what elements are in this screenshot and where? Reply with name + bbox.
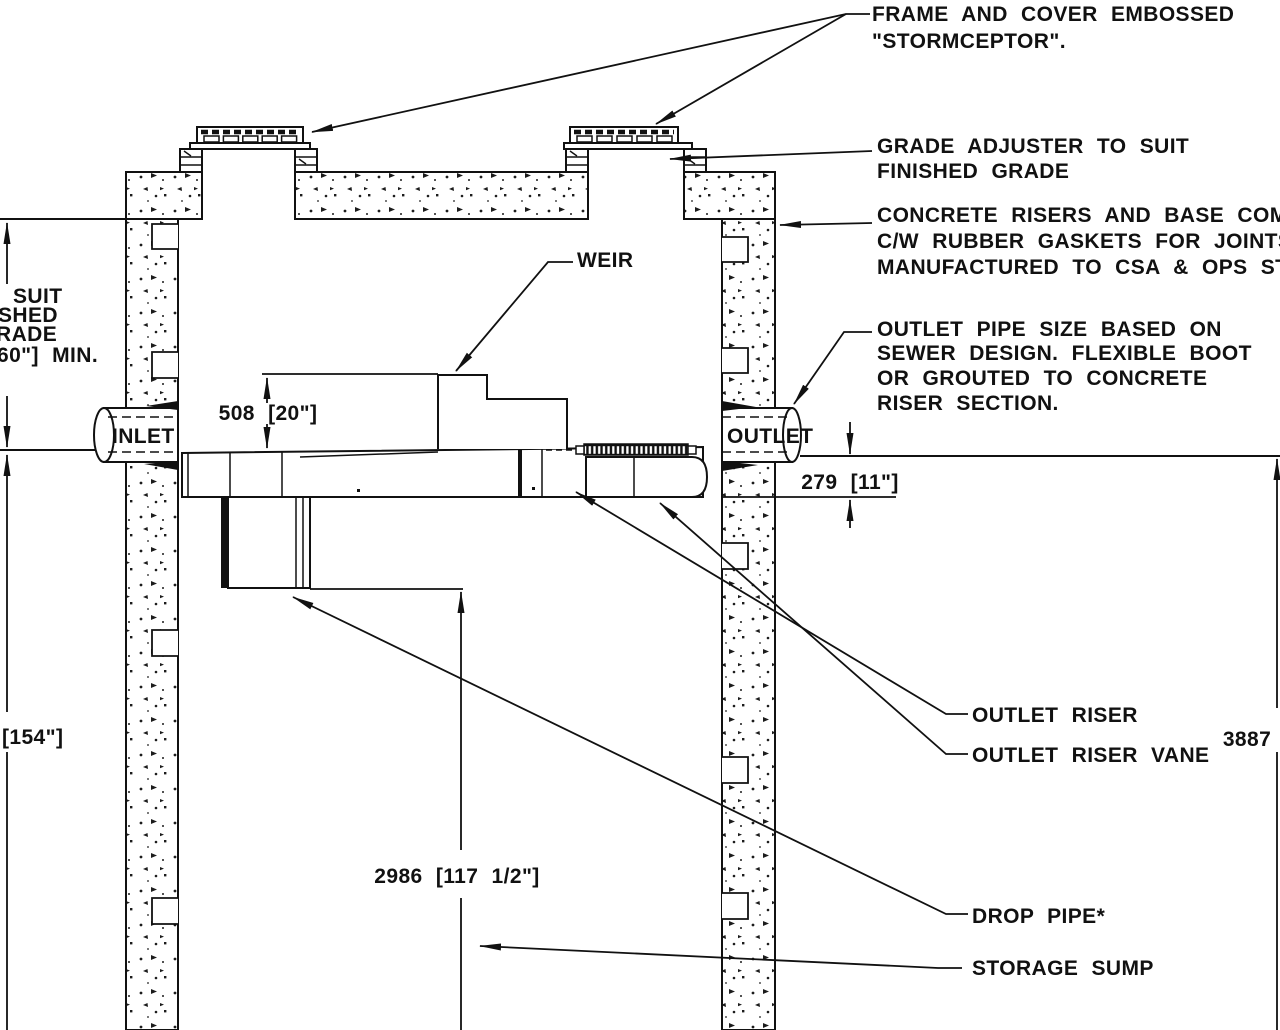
dim-overall-height: 3887 — [1223, 728, 1271, 751]
callout-concrete-risers: CONCRETE RISERS AND BASE COMPONENTS — [877, 204, 1280, 227]
weir-plate — [438, 375, 567, 449]
callout-drop-pipe: DROP PIPE* — [972, 905, 1106, 928]
dim-sump-depth: 2986 [117 1/2"] — [374, 865, 539, 888]
manhole-cover — [570, 127, 678, 143]
access-assembly-left — [180, 127, 317, 172]
outlet-riser-assembly — [576, 444, 707, 497]
callout-outlet-pipe: RISER SECTION. — [877, 392, 1059, 415]
callout-storage-sump: STORAGE SUMP — [972, 957, 1154, 980]
top-slab-left — [126, 172, 202, 219]
dim-weir-drop: 508 [20"] — [219, 402, 318, 425]
callout-grade-adjuster: FINISHED GRADE — [877, 160, 1069, 183]
outlet-label: OUTLET — [727, 425, 813, 448]
callout-outlet-pipe: OR GROUTED TO CONCRETE — [877, 367, 1207, 390]
grade-adjuster-stack — [566, 149, 588, 172]
leader-concrete-risers — [780, 223, 872, 225]
drawing-canvas: FRAME AND COVER EMBOSSED "STORMCEPTOR". … — [0, 0, 1280, 1030]
leader-weir — [456, 262, 573, 371]
top-slab-middle — [295, 172, 588, 219]
leader-outlet-pipe — [794, 332, 872, 404]
leader-frame-cover-right — [656, 14, 846, 124]
dim-left-depth: [154"] — [2, 726, 63, 749]
callout-outlet-riser-vane: OUTLET RISER VANE — [972, 744, 1209, 767]
callout-frame-cover: "STORMCEPTOR". — [872, 30, 1066, 53]
top-slab-right — [684, 172, 775, 219]
grade-adjuster-stack — [684, 149, 706, 172]
outlet-riser-body — [586, 457, 707, 497]
access-assembly-right — [564, 127, 706, 172]
callout-concrete-risers: C/W RUBBER GASKETS FOR JOINTS. — [877, 230, 1280, 253]
cutoff-text: RADE — [0, 323, 57, 346]
manhole-cover — [197, 127, 303, 143]
outlet-riser-vane-grate — [584, 444, 688, 455]
drop-pipe-body — [221, 497, 310, 588]
callout-concrete-risers: MANUFACTURED TO CSA & OPS STDS. — [877, 256, 1280, 279]
callout-outlet-pipe: OUTLET PIPE SIZE BASED ON — [877, 318, 1222, 341]
cutoff-text: 60"] MIN. — [0, 344, 98, 367]
callout-outlet-pipe: SEWER DESIGN. FLEXIBLE BOOT — [877, 342, 1252, 365]
leader-frame-cover-left — [312, 14, 870, 132]
grade-adjuster-stack — [295, 149, 317, 172]
callout-grade-adjuster: GRADE ADJUSTER TO SUIT — [877, 135, 1189, 158]
leader-outlet-riser-vane — [660, 503, 968, 754]
inlet-label: INLET — [112, 425, 175, 448]
callout-frame-cover: FRAME AND COVER EMBOSSED — [872, 3, 1234, 26]
stormceptor-cross-section: FRAME AND COVER EMBOSSED "STORMCEPTOR". … — [0, 0, 1280, 1030]
grade-adjuster-stack — [180, 149, 202, 172]
callout-weir: WEIR — [577, 249, 633, 272]
dim-outlet-drop: 279 [11"] — [801, 471, 899, 494]
callout-outlet-riser: OUTLET RISER — [972, 704, 1138, 727]
